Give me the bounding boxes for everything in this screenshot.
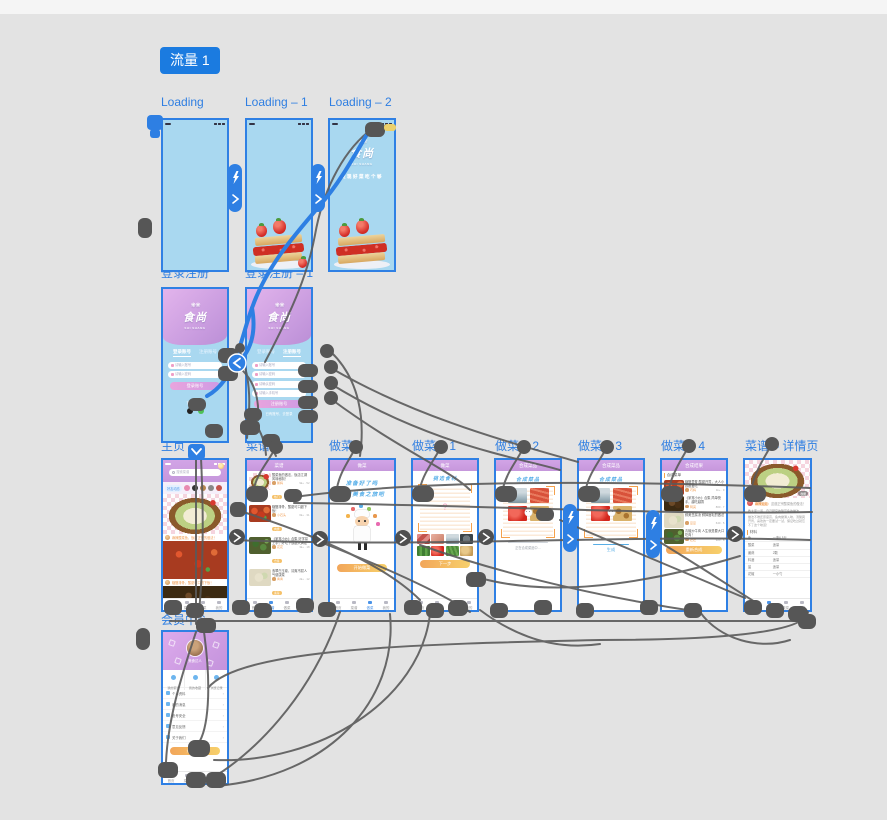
page-header: 做菜 — [330, 460, 394, 471]
author-avatar — [685, 488, 689, 492]
artboard-member[interactable]: 美食达人 我的菜谱 我的收藏 浏览记录 个人资料 我的消息 账号安全 意见反馈 … — [161, 630, 229, 785]
author-avatar — [685, 521, 689, 525]
tab-mine[interactable]: 我的 — [378, 599, 394, 610]
ingredient-fish — [591, 488, 610, 503]
sandwich-illustration — [330, 204, 394, 270]
tab-login[interactable]: 登录账号 — [257, 349, 275, 357]
user-avatar — [165, 535, 170, 540]
brand-tagline: 发现好菜吃个够 — [330, 174, 394, 180]
recipes-icon — [171, 675, 176, 680]
tab-bar: 首页 菜谱 做菜 我的 — [163, 598, 227, 610]
label-cook4[interactable]: 做菜 – 4 — [661, 437, 705, 454]
stat-favorites[interactable]: 我的收藏 — [185, 667, 207, 690]
login-header: ❋ ❋食尚SHI SHANG — [247, 289, 311, 345]
start-cook-button[interactable]: 开始做菜 — [337, 564, 387, 572]
author-avatar — [272, 577, 276, 581]
recipe-item[interactable]: 《家常小炒》合集 好学易上手，好吃下饭超大满足 花花3k+ · 18 合集 — [247, 535, 311, 567]
chef-illustration — [344, 504, 380, 554]
tab-recipe[interactable]: 菜谱 — [263, 599, 279, 610]
label-loading[interactable]: Loading — [161, 95, 204, 109]
artboard-home[interactable]: 搜索菜谱 好友动态 麻辣酸菜鱼，饭店正宗的做法！ 糖醋排骨，酸甜可口超下饭！ 首… — [161, 458, 229, 612]
smiley-icon — [525, 509, 532, 516]
recipe-thumb — [664, 496, 684, 511]
collect-badge[interactable]: 收藏 — [798, 491, 808, 496]
menu-item-security[interactable]: 账号安全 — [163, 710, 227, 721]
to-login-hint[interactable]: 已有账号，去登录 — [247, 411, 311, 416]
label-cook3[interactable]: 做菜 – 3 — [578, 437, 622, 454]
tab-recipe[interactable]: 菜谱 — [761, 599, 777, 610]
pick-title: 挑选食材 — [413, 475, 477, 482]
menu-item-feedback[interactable]: 意见反馈 — [163, 721, 227, 732]
design-tool-flow-view: { "flow_badge": "流量 1", "screen_labels":… — [0, 0, 887, 820]
recipe-thumb — [249, 537, 271, 554]
ingredient-fish[interactable] — [446, 534, 459, 544]
user-avatar — [165, 580, 170, 585]
artboard-recipe-detail[interactable]: 收藏 麻辣姐姐：这道正宗酸菜鱼的做法！ 教大家一道，自己研究的酸菜鱼的做法 做法… — [743, 458, 812, 612]
tab-bar: 首页 菜谱 做菜 我的 — [163, 771, 227, 783]
menu-item-messages[interactable]: 我的消息 — [163, 699, 227, 710]
flow-canvas[interactable] — [0, 14, 887, 820]
label-loading1[interactable]: Loading – 1 — [245, 95, 308, 109]
tab-mine[interactable]: 我的 — [211, 772, 227, 783]
tab-cook[interactable]: 做菜 — [195, 772, 211, 783]
generate-underline — [593, 544, 628, 545]
compose-area[interactable] — [503, 488, 553, 536]
artboard-cook-3[interactable]: 合成菜品 合成菜品 生成 — [577, 458, 645, 612]
tab-home[interactable]: 首页 — [247, 599, 263, 610]
scan-area[interactable]: ? — [420, 486, 470, 530]
home-header: 搜索菜谱 — [163, 460, 227, 482]
status-bar — [247, 120, 311, 127]
result-item[interactable]: 青椒炒牛肉 人生就是要大口吃肉！ 壮壮920 · 8 — [662, 528, 726, 545]
brand-logo: ❋ ❋食尚SHI SHANG — [183, 305, 207, 330]
label-cook[interactable]: 做菜 — [329, 437, 353, 454]
home-card-caption: 糖醋排骨，酸甜可口超下饭！ — [163, 579, 227, 586]
compose-progress-bar — [508, 542, 548, 543]
question-mark: ? — [420, 502, 470, 512]
brand-logo: ❋ ❋ 食尚 SHI SHANG — [330, 141, 394, 166]
label-cook2[interactable]: 做菜 – 2 — [495, 437, 539, 454]
tab-home[interactable]: 首页 — [163, 599, 179, 610]
favorites-icon — [193, 675, 198, 680]
tab-mine[interactable]: 我的 — [211, 599, 227, 610]
page-header: 菜谱 — [247, 460, 311, 471]
ingredient-pan[interactable] — [460, 534, 473, 544]
tab-login[interactable]: 登录账号 — [173, 349, 191, 357]
home-card-photo[interactable] — [163, 494, 227, 534]
story-chip[interactable]: 好友动态 — [165, 485, 182, 492]
password-field[interactable]: 请输入密码 — [168, 371, 222, 378]
artboard-cook-1[interactable]: 做菜 挑选食材 ? 下一步 首页 菜谱 做菜 我的 — [411, 458, 479, 612]
cook-line2: 开启美食之旅吧 — [330, 490, 394, 498]
label-loading2[interactable]: Loading – 2 — [329, 95, 392, 109]
app-top-bar — [0, 0, 887, 14]
tab-cook[interactable]: 做菜 — [362, 599, 378, 610]
ingredient-meat[interactable] — [417, 534, 430, 544]
page-header: 做菜 — [413, 460, 477, 471]
result-section-title: 合成菜单 — [662, 471, 726, 478]
history-icon — [214, 675, 219, 680]
status-bar — [163, 120, 227, 127]
search-input[interactable]: 搜索菜谱 — [169, 469, 220, 476]
artboard-login-1[interactable]: ❋ ❋食尚SHI SHANG 登录账号 注册账号 请输入账号 请输入密码 请确认… — [245, 287, 313, 443]
confirm-password-field[interactable]: 请确认密码 — [252, 381, 306, 388]
ingredient-tomato — [591, 506, 610, 521]
password-field[interactable]: 请输入密码 — [252, 371, 306, 378]
login-button[interactable]: 登录账号 — [170, 382, 220, 390]
recipe-tag: 肉类 — [272, 527, 282, 531]
tab-recipe[interactable]: 菜谱 — [179, 772, 195, 783]
ingredient-cucumber[interactable] — [417, 546, 430, 556]
author-avatar — [272, 545, 276, 549]
brand-logo: ❋ ❋食尚SHI SHANG — [267, 305, 291, 330]
compose-progress-text: 正在合成菜品中… — [496, 545, 560, 550]
recipe-thumb — [249, 569, 271, 586]
recipe-item[interactable]: 酸菜鱼的做法，饭店江湖风味秘制！ 鹅妈9k+ · 52 热门 — [247, 471, 311, 503]
wechat-icon[interactable] — [198, 408, 204, 414]
recipe-item[interactable]: 翡翠白玉卷，清爽不腻人气健康菜 青青2k+ · 12 素菜 — [247, 567, 311, 599]
artboard-loading[interactable] — [161, 118, 229, 272]
member-stats-row: 我的菜谱 我的收藏 浏览记录 — [163, 670, 227, 688]
author-avatar — [747, 500, 753, 506]
result-item[interactable]: 糖醋里脊 酸甜开胃，大人小孩都爱吃 巧妈1k+ · 9 — [662, 478, 726, 495]
tab-register[interactable]: 注册账号 — [199, 349, 217, 357]
home-card-photo[interactable] — [163, 541, 227, 579]
tab-recipe[interactable]: 菜谱 — [346, 599, 362, 610]
author-avatar — [272, 513, 276, 517]
chef-avatar-icon[interactable] — [218, 463, 224, 469]
login-header: ❋ ❋食尚SHI SHANG — [163, 289, 227, 345]
stat-history[interactable]: 浏览记录 — [206, 667, 227, 690]
account-field[interactable]: 请输入账号 — [168, 362, 222, 369]
detail-hero-photo: 收藏 — [745, 460, 810, 498]
redo-compose-button[interactable]: 重新合成 — [666, 546, 722, 554]
artboard-loading-2[interactable]: ❋ ❋ 食尚 SHI SHANG 发现好菜吃个够 — [328, 118, 396, 272]
artboard-cook-2[interactable]: 合成菜品 合成菜品 正在合成菜品中… — [494, 458, 562, 612]
ingredient-grid[interactable] — [413, 534, 477, 556]
ingredient-tomato[interactable] — [431, 546, 444, 556]
cook-line1: 准备好了吗 — [330, 479, 394, 487]
phone-field[interactable]: 请输入手机号 — [252, 390, 306, 397]
smiley-icon — [608, 509, 615, 516]
tab-home[interactable]: 首页 — [745, 599, 761, 610]
recipe-thumb — [664, 513, 684, 528]
ingredient-potato — [613, 506, 632, 521]
tab-home[interactable]: 首页 — [413, 599, 429, 610]
tab-bar: 首页 菜谱 做菜 我的 — [745, 598, 810, 610]
page-header: 合成菜品 — [579, 460, 643, 471]
recipe-thumb — [664, 529, 684, 544]
recipe-thumb — [664, 480, 684, 495]
tab-bar: 首页 菜谱 做菜 我的 — [330, 598, 394, 610]
ingredient-potato — [530, 506, 549, 521]
page-header: 合成结果 — [662, 460, 726, 471]
artboard-cook[interactable]: 做菜 准备好了吗 开启美食之旅吧 开始做菜 首页 菜谱 做菜 我的 — [328, 458, 396, 612]
ingredients-section-title: 材料 — [745, 528, 810, 535]
status-bar — [330, 120, 394, 127]
recipe-tag: 热门 — [272, 495, 282, 499]
label-detail[interactable]: 菜谱 – 详情页 — [745, 437, 818, 454]
compose-title: 合成菜品 — [579, 476, 643, 483]
tab-bar: 首页 菜谱 做菜 我的 — [413, 598, 477, 610]
artboard-recipe-list[interactable]: 菜谱 酸菜鱼的做法，饭店江湖风味秘制！ 鹅妈9k+ · 52 热门 糖醋排骨，酸… — [245, 458, 313, 612]
compose-area[interactable] — [586, 488, 636, 536]
tab-mine[interactable]: 我的 — [295, 599, 311, 610]
ingredient-fish — [508, 488, 527, 503]
ingredient-potato[interactable] — [460, 546, 473, 556]
sandwich-illustration — [247, 192, 311, 270]
tab-mine[interactable]: 我的 — [794, 599, 810, 610]
detail-paragraph: 做法不难还原度高，鱼肉嫩滑入味，汤酸爽开胃，喜欢的一定要试一试，保证吃过就忘不了… — [745, 514, 810, 528]
qq-icon[interactable] — [187, 408, 193, 414]
menu-item-profile[interactable]: 个人资料 — [163, 688, 227, 699]
story-row[interactable]: 好友动态 — [163, 482, 227, 494]
tab-cook[interactable]: 做菜 — [279, 599, 295, 610]
tab-cook[interactable]: 做菜 — [195, 599, 211, 610]
tab-home[interactable]: 首页 — [163, 772, 179, 783]
tab-cook[interactable]: 做菜 — [445, 599, 461, 610]
tab-home[interactable]: 首页 — [330, 599, 346, 610]
logout-button[interactable]: 退出登录 — [170, 747, 220, 755]
tab-register[interactable]: 注册账号 — [283, 349, 301, 357]
author-avatar — [685, 505, 689, 509]
artboard-loading-1[interactable] — [245, 118, 313, 272]
stat-my-recipes[interactable]: 我的菜谱 — [163, 667, 185, 690]
recipe-tag: 素菜 — [272, 591, 282, 595]
member-header: 美食达人 — [163, 632, 227, 670]
result-item[interactable]: 鲜美豆腐汤 鲜掉眉毛的做法 豆豆640 · 5 — [662, 511, 726, 528]
recipe-thumb — [249, 473, 271, 490]
tab-recipe[interactable]: 菜谱 — [429, 599, 445, 610]
author-avatar — [272, 481, 276, 485]
ingredient-beans[interactable] — [446, 546, 459, 556]
home-card-caption: 麻辣酸菜鱼，饭店正宗的做法！ — [163, 534, 227, 541]
tab-cook[interactable]: 做菜 — [778, 599, 794, 610]
compose-title: 合成菜品 — [496, 476, 560, 483]
ingredient-tomato — [508, 506, 527, 521]
author-avatar — [685, 538, 689, 542]
label-member[interactable]: 会员中心 — [161, 611, 209, 628]
page-header: 合成菜品 — [496, 460, 560, 471]
artboard-cook-4[interactable]: 合成结果 合成菜单 糖醋里脊 酸甜开胃，大人小孩都爱吃 巧妈1k+ · 9 《家… — [660, 458, 728, 612]
member-name: 美食达人 — [163, 658, 227, 663]
register-button[interactable]: 注册账号 — [254, 400, 304, 408]
ingredient-pork[interactable] — [431, 534, 444, 544]
tab-recipe[interactable]: 菜谱 — [179, 599, 195, 610]
third-party-label: 第三方登录 — [163, 400, 227, 405]
recipe-item[interactable]: 糖醋排骨，酸甜可口超下饭！ 小石头6k+ · 31 肉类 — [247, 503, 311, 535]
account-field[interactable]: 请输入账号 — [252, 362, 306, 369]
result-item[interactable]: 《家常小炒》合集 简单快手，越吃越香 阿亮860 · 7 — [662, 495, 726, 512]
recipe-tag: 合集 — [272, 559, 282, 563]
artboard-login[interactable]: ❋ ❋食尚SHI SHANG 登录账号 注册账号 请输入账号 请输入密码 登录账… — [161, 287, 229, 443]
recipe-thumb — [249, 505, 271, 522]
member-avatar[interactable] — [187, 640, 203, 656]
generate-link[interactable]: 生成 — [579, 547, 643, 553]
detail-author-row: 麻辣姐姐：这道正宗酸菜鱼的做法！ — [745, 498, 810, 508]
label-cook1[interactable]: 做菜 – 1 — [412, 437, 456, 454]
tab-bar: 首页 菜谱 做菜 我的 — [247, 598, 311, 610]
next-step-button[interactable]: 下一步 — [420, 560, 470, 568]
flow-name-badge[interactable]: 流量 1 — [160, 47, 220, 74]
menu-item-about[interactable]: 关于我们 — [163, 732, 227, 743]
tab-mine[interactable]: 我的 — [461, 599, 477, 610]
